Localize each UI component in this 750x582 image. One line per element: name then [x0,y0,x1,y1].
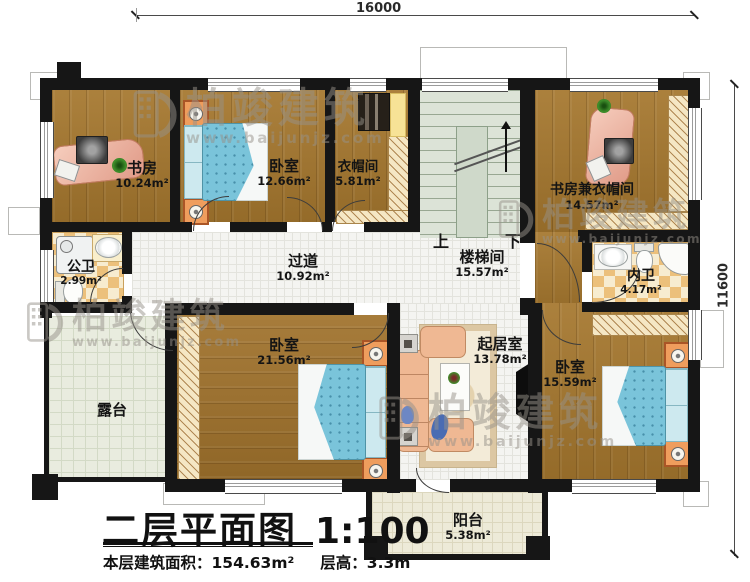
wardrobe-bedroom3 [592,314,690,336]
area-value: 154.63m² [212,554,295,572]
window-bay-outline [700,310,724,368]
coffee-table [440,363,470,411]
dimension-right-value: 11600 [717,262,732,310]
room-area: 10.92m² [276,270,329,283]
lamp-icon [369,347,383,361]
wall [172,303,354,315]
wall [450,479,572,492]
shower-head-icon [60,240,73,253]
window [572,479,656,494]
sink [598,247,628,267]
room-label-study-cloakroom: 书房兼衣帽间 14.57m² [550,183,634,212]
wall [578,230,700,242]
lamp-icon [671,349,685,363]
door-balcony [416,468,449,493]
terrace-parapet [44,477,165,482]
room-area: 13.78m² [473,353,526,366]
wall [40,222,192,232]
wall [322,222,332,232]
room-area: 15.59m² [543,376,596,389]
wall [528,303,542,493]
room-area: 21.56m² [257,354,310,367]
lamp-icon [369,464,383,478]
floor-plan-canvas: 书房 10.24m² 卧室 12.66m² 衣帽间 5.81m² 书房兼衣帽间 … [0,0,750,582]
window [40,250,54,302]
wall [40,302,132,313]
room-area: 15.57m² [455,266,508,279]
wall [230,222,287,232]
room-label-stairwell: 楼梯间 15.57m² [455,249,508,279]
armchair [420,326,466,358]
room-label-living: 起居室 13.78m² [473,336,526,366]
wardrobe-study-cloakroom-right [668,95,690,212]
closet-shelf [358,93,390,131]
plan-info-row: 本层建筑面积：154.63m²层高：3.3m [103,551,410,573]
room-name: 内卫 [620,269,661,285]
window [422,78,508,92]
corner-column [526,536,550,560]
room-name: 过道 [276,253,329,270]
window [570,78,658,92]
bed-headboard [184,125,204,199]
room-label-cloakroom: 衣帽间 5.81m² [335,160,380,188]
dimension-top-value: 16000 [356,1,401,16]
room-label-terrace: 露台 [97,402,127,419]
room-name: 书房兼衣帽间 [550,183,634,199]
room-area: 14.57m² [550,199,634,212]
room-name: 楼梯间 [455,249,508,266]
wall [582,302,700,312]
height-value: 3.3m [367,554,411,572]
side-table [398,427,418,446]
room-area: 4.17m² [620,285,661,297]
window [688,108,702,200]
room-name: 书房 [115,160,168,177]
room-label-bedroom2: 卧室 21.56m² [257,337,310,367]
wall [656,479,700,492]
window [208,78,300,92]
wall [364,222,408,232]
room-area: 2.99m² [60,276,101,288]
room-label-corridor: 过道 10.92m² [276,253,329,283]
room-label-private-bath: 内卫 4.17m² [620,269,661,296]
room-name: 露台 [97,402,127,419]
wardrobe-cloakroom [388,136,410,216]
computer-monitor [604,138,634,164]
room-area: 5.81m² [335,175,380,188]
window-bay-outline [8,207,40,235]
stair-landing-strip [456,126,488,238]
plan-title: 二层平面图 [102,509,297,552]
wall [170,90,180,222]
wardrobe-study-cloakroom-bottom [585,212,690,230]
wall [408,78,420,232]
wall [342,479,416,492]
room-label-balcony: 阳台 5.38m² [445,512,490,542]
room-label-study: 书房 10.24m² [115,160,168,190]
sink [95,237,122,258]
room-name: 卧室 [543,359,596,376]
room-name: 公卫 [60,260,101,276]
plan-title-row: 二层平面图1:100 [102,500,430,554]
wall [582,242,592,272]
room-label-public-bath: 公卫 2.99m² [60,260,101,287]
stair-down-label: 下 [505,228,521,252]
wardrobe-bedroom2 [178,316,200,480]
closet-light-strip [390,93,406,137]
corner-column [57,62,81,80]
room-name: 阳台 [445,512,490,529]
computer-monitor [76,136,108,164]
side-table [398,334,418,353]
stair-arrow-head [501,121,511,129]
plant [597,99,611,113]
extension-line [136,8,137,22]
stair-up-label: 上 [433,228,449,252]
lamp-icon [189,107,203,121]
wall [122,222,132,274]
corner-column [32,474,58,500]
room-label-bedroom1: 卧室 12.66m² [257,158,310,188]
room-name: 卧室 [257,158,310,175]
room-name: 卧室 [257,337,310,354]
wall [520,78,535,243]
wall [387,303,400,493]
room-name: 起居室 [473,336,526,353]
cushion [401,406,414,424]
room-area: 12.66m² [257,175,310,188]
window-bay-outline [420,47,567,81]
lamp-icon [671,447,685,461]
window [225,479,342,494]
room-label-bedroom3: 卧室 15.59m² [543,359,596,389]
room-area: 5.38m² [445,529,490,542]
room-area: 10.24m² [115,177,168,190]
room-name: 衣帽间 [335,160,380,175]
dimension-line-top [136,15,695,16]
window [688,310,702,360]
plan-scale: 1:100 [315,511,430,552]
window [350,78,386,92]
wall [325,90,335,222]
height-label: 层高： [320,554,367,572]
flower-vase [448,372,460,384]
dimension-line-right [734,84,735,556]
terrace-parapet [44,316,49,482]
area-label: 本层建筑面积： [103,554,212,572]
stair-direction-arrow [505,128,507,172]
window [40,122,54,198]
